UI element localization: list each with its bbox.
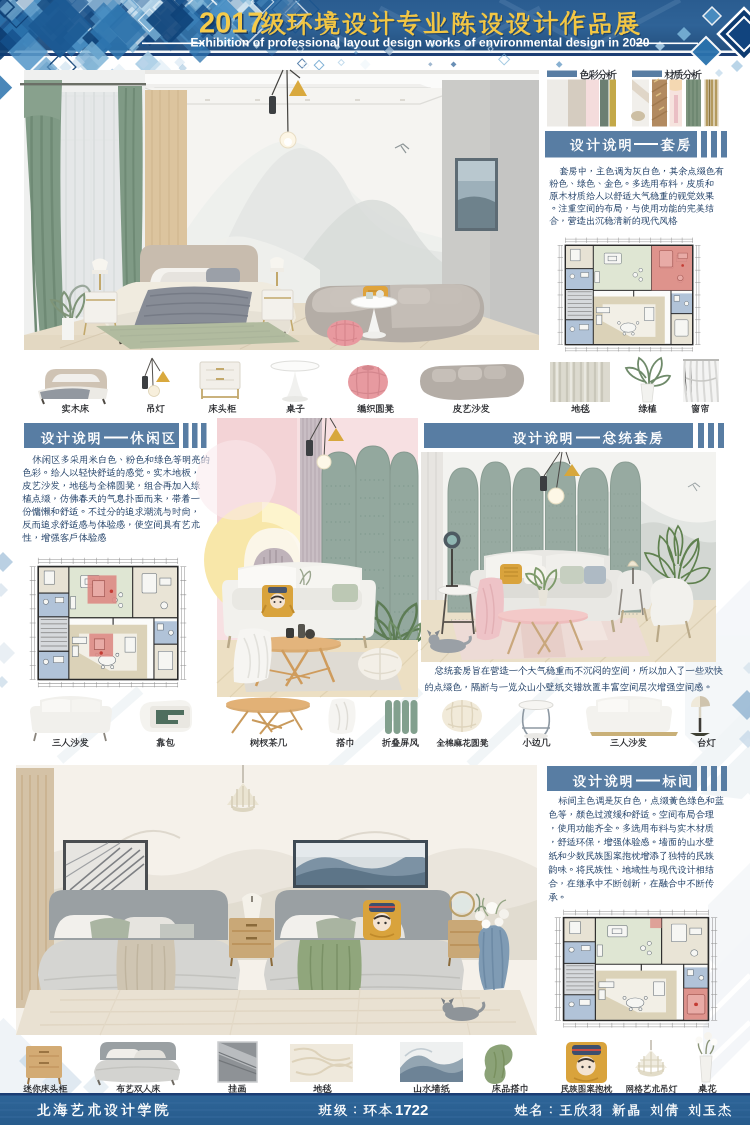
- svg-text:1722: 1722: [395, 1102, 428, 1119]
- svg-text:Exhibition of professional lay: Exhibition of professional layout design…: [190, 36, 649, 50]
